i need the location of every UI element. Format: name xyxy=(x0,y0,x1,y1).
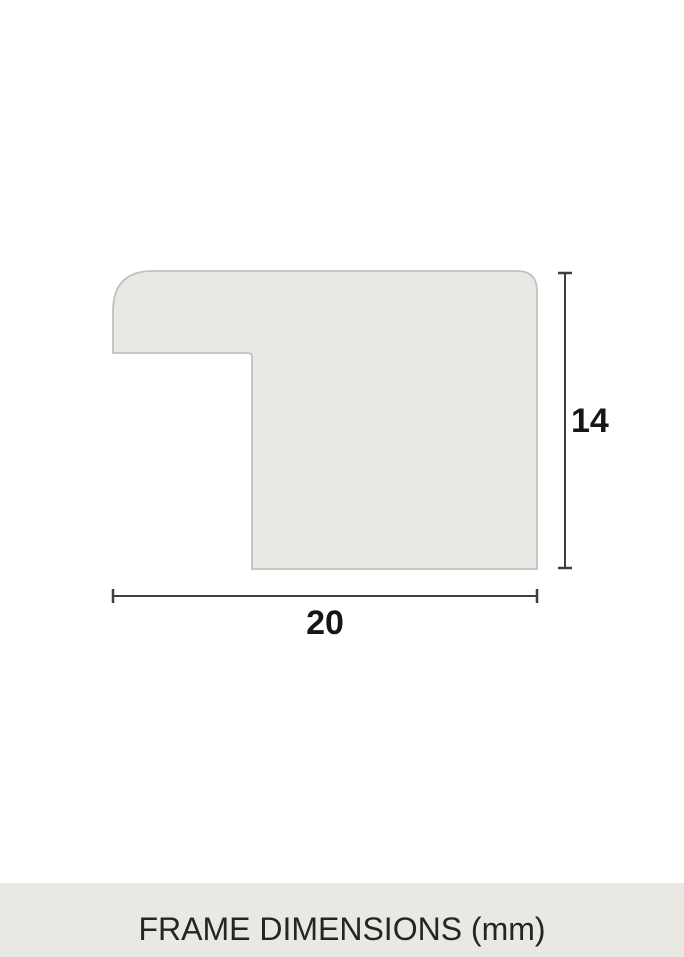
footer-bar: FRAME DIMENSIONS (mm) xyxy=(0,883,684,957)
frame-profile-diagram: 14 20 xyxy=(0,0,684,883)
footer-title: FRAME DIMENSIONS (mm) xyxy=(138,911,545,948)
frame-dimensions-page: 14 20 FRAME DIMENSIONS (mm) xyxy=(0,0,684,957)
width-dimension: 20 xyxy=(113,589,537,642)
frame-profile-shape xyxy=(113,271,537,569)
height-dimension: 14 xyxy=(558,273,609,568)
width-dimension-label: 20 xyxy=(306,604,344,642)
height-dimension-label: 14 xyxy=(571,402,609,440)
